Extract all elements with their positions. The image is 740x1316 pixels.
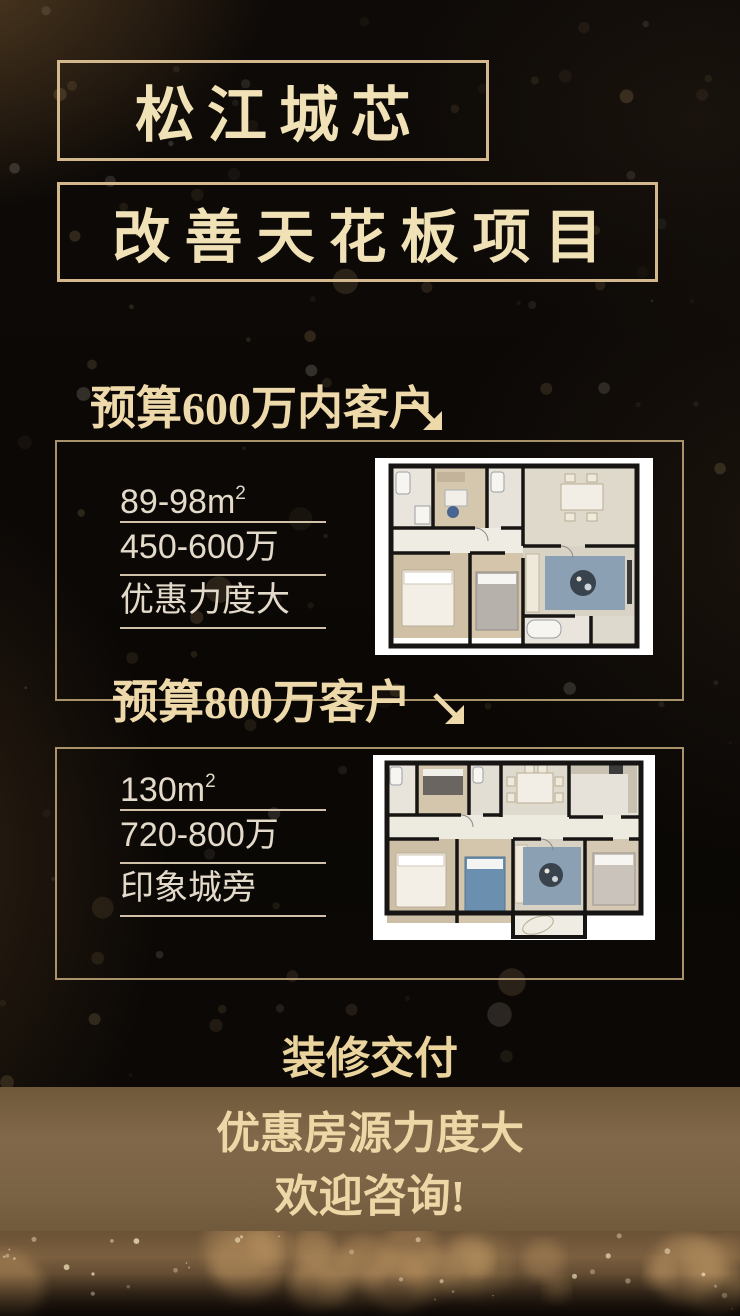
spec-text: 720-800万: [120, 816, 279, 854]
spec-row-note: 印象城旁: [120, 868, 326, 917]
footer-band: 优惠房源力度大 欢迎咨询!: [0, 1087, 740, 1231]
footer-promo-text: 优惠房源力度大: [0, 1097, 740, 1161]
spec-row-area: 89-98m2: [120, 474, 326, 523]
arrow-down-right-icon: [430, 690, 470, 730]
spec-text: 130m: [120, 771, 205, 809]
section-1-heading: 预算600万内客户: [90, 372, 435, 438]
spec-text: 450-600万: [120, 528, 279, 566]
arrow-down-right-icon: [408, 396, 448, 436]
title-sub: 改善天花板项目: [98, 190, 616, 274]
spec-row-area: 130m2: [120, 762, 326, 811]
spec-superscript: 2: [205, 771, 216, 792]
gold-glitter-texture: [0, 1231, 740, 1316]
spec-text: 印象城旁: [120, 869, 256, 907]
title-main: 松江城芯: [123, 67, 423, 154]
spec-superscript: 2: [235, 483, 246, 504]
title-box-main: 松江城芯: [57, 60, 489, 161]
floor-plan-2-image: [373, 755, 655, 940]
floor-plan-1-image: [375, 458, 653, 655]
spec-row-price: 720-800万: [120, 815, 326, 864]
spec-row-note: 优惠力度大: [120, 580, 326, 629]
section-2-heading: 预算800万客户: [112, 666, 411, 732]
poster-page: 松江城芯 改善天花板项目 预算600万内客户 89-98m2 450-600万 …: [0, 0, 740, 1316]
footer-delivery-text: 装修交付: [0, 1022, 740, 1086]
spec-text: 优惠力度大: [120, 581, 290, 619]
spec-row-price: 450-600万: [120, 527, 326, 576]
title-box-sub: 改善天花板项目: [57, 182, 658, 282]
footer-welcome-text: 欢迎咨询!: [0, 1160, 740, 1224]
spec-text: 89-98m: [120, 483, 235, 521]
